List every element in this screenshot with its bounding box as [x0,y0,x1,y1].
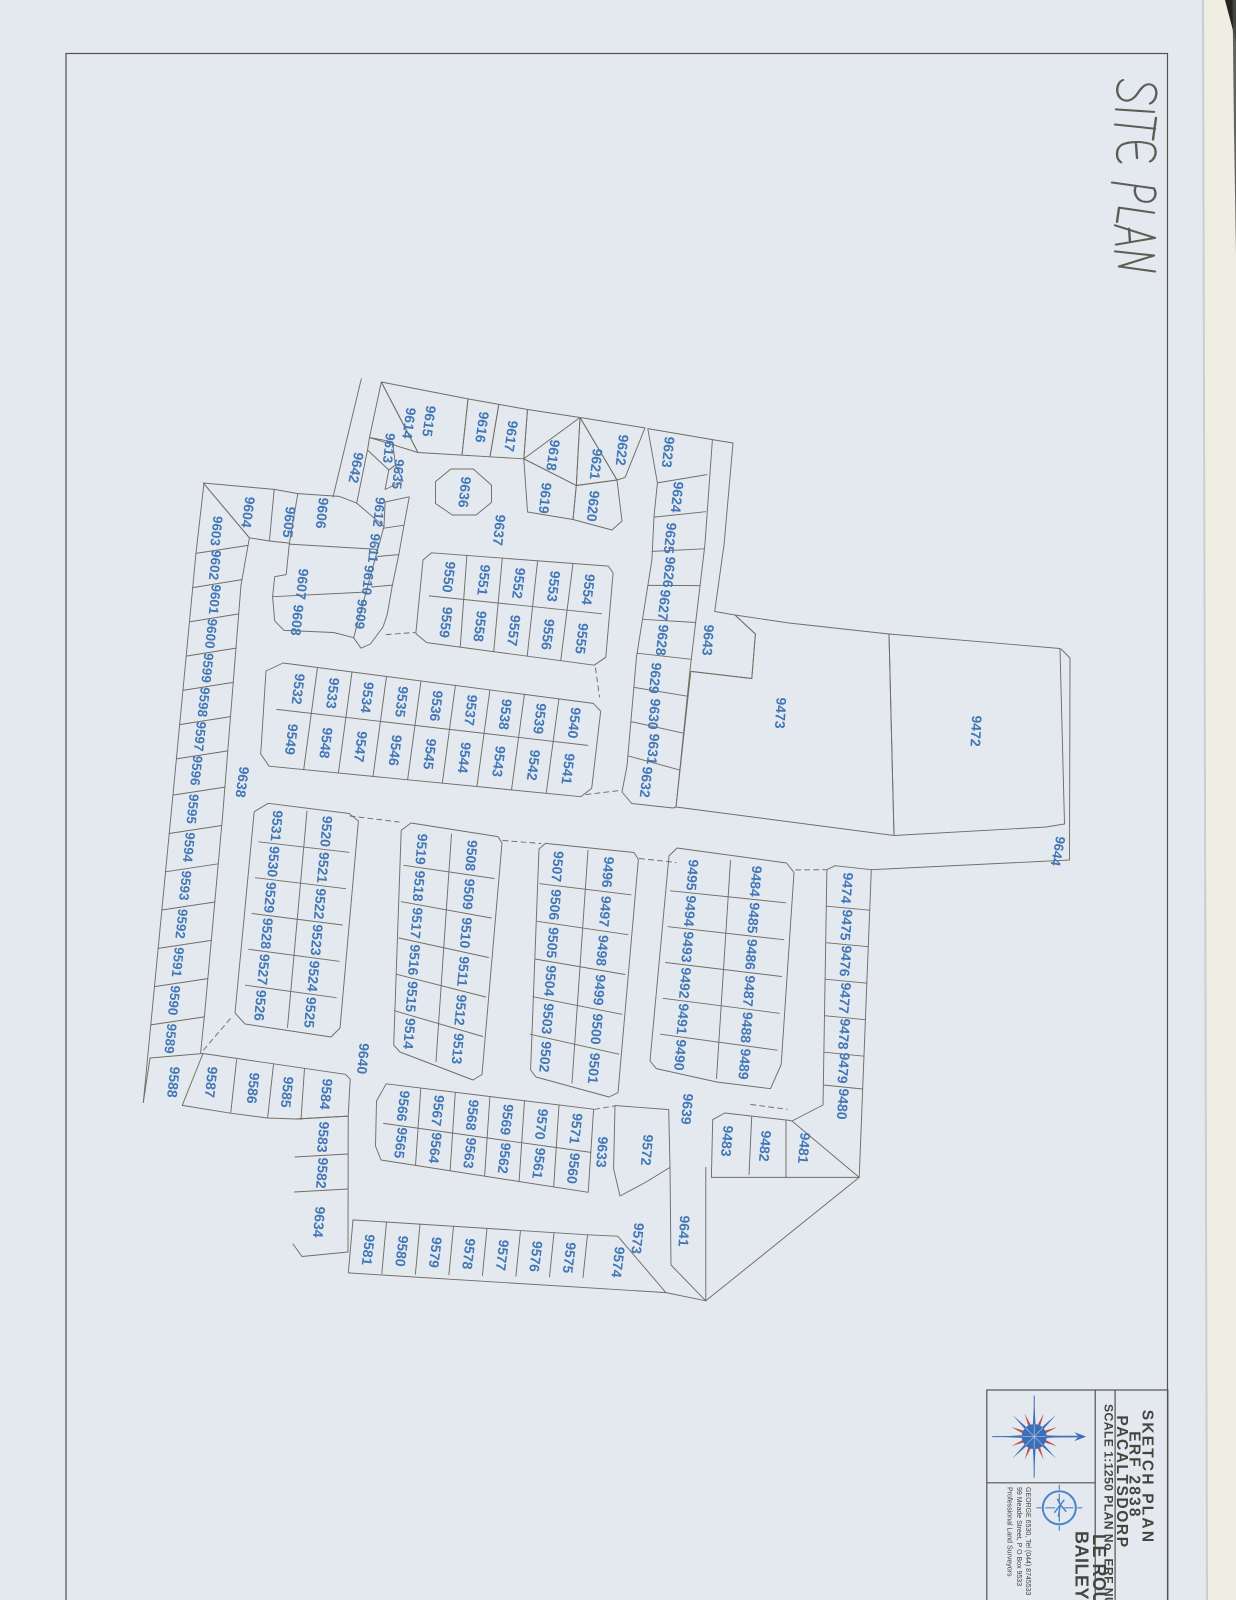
svg-text:9633: 9633 [593,1136,611,1168]
svg-text:9639: 9639 [678,1093,697,1126]
svg-text:9593: 9593 [176,870,194,902]
svg-text:9620: 9620 [584,490,603,523]
svg-text:LE ROUX: LE ROUX [1089,1534,1109,1600]
svg-text:9477: 9477 [836,982,855,1015]
svg-text:9640: 9640 [354,1042,373,1075]
svg-text:9503: 9503 [539,1003,558,1036]
svg-text:9517: 9517 [407,907,426,940]
svg-text:9501: 9501 [585,1052,604,1085]
svg-text:9588: 9588 [164,1066,183,1099]
svg-text:9516: 9516 [405,944,424,977]
svg-text:9473: 9473 [772,697,790,729]
svg-text:9529: 9529 [261,881,280,914]
svg-text:9526: 9526 [251,989,270,1022]
svg-text:9506: 9506 [546,888,565,921]
svg-text:9485: 9485 [744,902,763,935]
svg-text:9634: 9634 [310,1206,329,1239]
svg-text:9630: 9630 [645,698,664,731]
svg-text:9641: 9641 [675,1215,693,1247]
svg-text:9504: 9504 [541,965,560,998]
svg-text:9586: 9586 [244,1072,263,1105]
svg-text:9472: 9472 [967,715,985,747]
svg-text:9631: 9631 [644,733,663,766]
svg-text:9475: 9475 [837,909,856,942]
svg-text:9518: 9518 [410,870,429,903]
svg-text:9489: 9489 [735,1048,754,1081]
svg-text:9572: 9572 [638,1134,657,1167]
svg-text:9590: 9590 [165,985,183,1016]
svg-text:9513: 9513 [449,1032,468,1065]
svg-text:9592: 9592 [172,908,190,939]
svg-text:9643: 9643 [699,624,717,656]
svg-text:9599: 9599 [198,652,216,683]
svg-text:9612: 9612 [370,496,388,527]
svg-text:9514: 9514 [400,1017,419,1050]
svg-text:9528: 9528 [258,917,277,950]
svg-text:9589: 9589 [161,1023,179,1054]
svg-text:9623: 9623 [659,436,678,469]
svg-text:9520: 9520 [317,815,336,848]
svg-text:9573: 9573 [628,1222,647,1255]
svg-text:9591: 9591 [169,946,187,978]
svg-text:9498: 9498 [593,934,612,967]
svg-text:9594: 9594 [180,831,198,863]
svg-text:9507: 9507 [548,850,567,883]
svg-text:9508: 9508 [462,839,481,872]
svg-text:9605: 9605 [280,506,299,539]
svg-text:9509: 9509 [459,878,478,911]
svg-text:9530: 9530 [264,845,283,878]
svg-text:9584: 9584 [317,1078,336,1111]
svg-text:9493: 9493 [678,931,697,964]
svg-text:9488: 9488 [738,1011,757,1044]
svg-text:9521: 9521 [314,851,333,884]
svg-text:9496: 9496 [599,856,618,889]
svg-text:9598: 9598 [195,686,213,718]
svg-text:9480: 9480 [834,1088,853,1121]
svg-text:9524: 9524 [304,960,323,993]
svg-text:9478: 9478 [835,1018,854,1051]
svg-text:9479: 9479 [834,1052,853,1085]
svg-text:9636: 9636 [455,476,474,509]
svg-text:9625: 9625 [661,522,680,555]
svg-text:9609: 9609 [352,598,370,629]
svg-text:Professional Land Surveyors: Professional Land Surveyors [1006,1487,1013,1577]
svg-text:9595: 9595 [183,793,201,825]
svg-text:9628: 9628 [653,624,672,657]
svg-text:9476: 9476 [836,945,855,978]
svg-text:9622: 9622 [613,434,632,467]
svg-text:9490: 9490 [671,1039,690,1072]
svg-text:9602: 9602 [206,549,224,580]
svg-text:9619: 9619 [536,482,555,515]
svg-text:GEORGE 6530, Tel (044) 8745533: GEORGE 6530, Tel (044) 8745533 [1024,1487,1031,1596]
svg-text:9519: 9519 [412,833,431,866]
svg-text:9627: 9627 [655,589,674,622]
svg-text:9523: 9523 [308,924,327,957]
svg-text:9487: 9487 [740,975,759,1008]
svg-text:9515: 9515 [403,980,422,1013]
svg-text:99 Meade Street, P O Box 9533: 99 Meade Street, P O Box 9533 [1015,1487,1022,1586]
svg-text:9583: 9583 [314,1121,333,1154]
svg-text:9608: 9608 [288,604,307,637]
svg-text:9494: 9494 [681,895,700,928]
svg-text:9483: 9483 [718,1125,737,1158]
svg-text:9481: 9481 [795,1132,814,1165]
svg-text:9500: 9500 [588,1013,607,1046]
svg-text:9492: 9492 [676,967,695,1000]
svg-text:9531: 9531 [268,810,287,843]
svg-text:9624: 9624 [668,481,687,514]
svg-text:BAILEY: BAILEY [1071,1531,1091,1600]
svg-text:9511: 9511 [454,956,473,988]
svg-text:9474: 9474 [838,872,857,905]
svg-text:9582: 9582 [313,1157,332,1190]
svg-text:9629: 9629 [646,662,665,695]
svg-text:9525: 9525 [301,996,320,1029]
svg-text:9587: 9587 [202,1066,221,1099]
svg-text:9527: 9527 [254,953,273,986]
svg-text:9601: 9601 [206,584,224,616]
svg-text:9626: 9626 [660,556,679,589]
svg-text:9596: 9596 [187,755,205,787]
svg-text:9597: 9597 [191,721,209,752]
svg-text:9502: 9502 [536,1041,555,1074]
svg-text:9522: 9522 [311,888,330,921]
svg-text:9621: 9621 [587,448,606,481]
svg-text:9603: 9603 [207,515,225,547]
svg-text:9486: 9486 [742,938,761,971]
svg-text:9600: 9600 [202,618,220,649]
svg-text:9632: 9632 [637,766,656,799]
svg-text:9512: 9512 [451,994,470,1027]
svg-text:9484: 9484 [747,865,766,898]
svg-text:9499: 9499 [590,974,609,1007]
svg-text:9505: 9505 [543,926,562,959]
svg-text:9607: 9607 [293,568,312,601]
svg-text:9585: 9585 [278,1076,297,1109]
svg-text:9637: 9637 [490,514,509,547]
svg-text:9495: 9495 [683,859,702,892]
svg-text:9491: 9491 [674,1003,693,1036]
svg-text:9635: 9635 [389,458,407,490]
svg-text:9611: 9611 [365,533,383,564]
svg-text:9610: 9610 [359,564,377,595]
svg-text:9497: 9497 [596,895,615,928]
svg-text:9482: 9482 [756,1130,775,1163]
svg-text:9510: 9510 [457,917,476,950]
svg-text:9606: 9606 [313,497,332,530]
